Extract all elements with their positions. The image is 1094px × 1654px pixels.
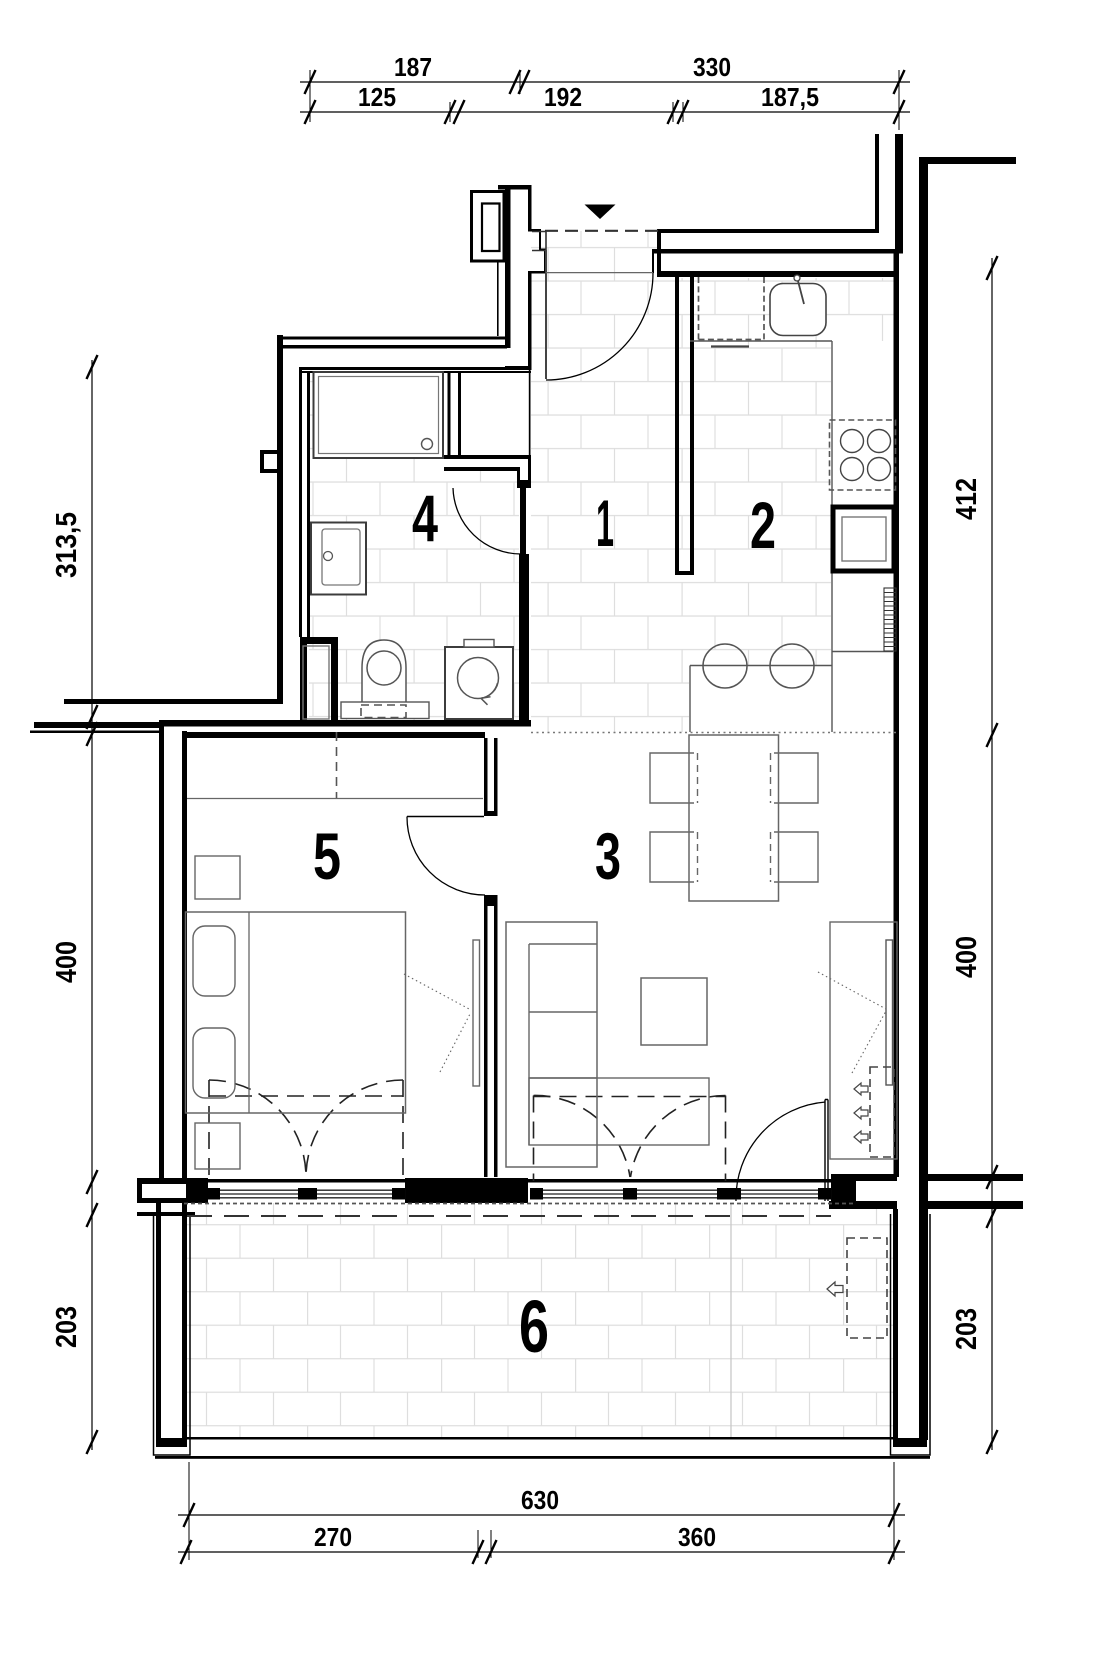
svg-text:192: 192 — [544, 82, 582, 112]
svg-text:313,5: 313,5 — [51, 512, 83, 578]
svg-text:2: 2 — [750, 488, 776, 562]
svg-text:400: 400 — [51, 941, 83, 983]
svg-text:3: 3 — [595, 819, 621, 893]
svg-text:270: 270 — [314, 1522, 352, 1552]
svg-text:5: 5 — [313, 819, 341, 893]
svg-text:187: 187 — [394, 52, 432, 82]
svg-text:6: 6 — [519, 1285, 549, 1368]
svg-text:330: 330 — [693, 52, 731, 82]
svg-text:4: 4 — [412, 481, 438, 555]
svg-text:360: 360 — [678, 1522, 716, 1552]
svg-text:412: 412 — [951, 478, 983, 520]
svg-text:125: 125 — [358, 82, 396, 112]
svg-text:203: 203 — [951, 1308, 983, 1350]
svg-text:1: 1 — [596, 486, 614, 560]
svg-text:630: 630 — [521, 1485, 559, 1515]
svg-text:187,5: 187,5 — [761, 82, 819, 112]
svg-text:400: 400 — [951, 936, 983, 978]
svg-text:203: 203 — [51, 1306, 83, 1348]
